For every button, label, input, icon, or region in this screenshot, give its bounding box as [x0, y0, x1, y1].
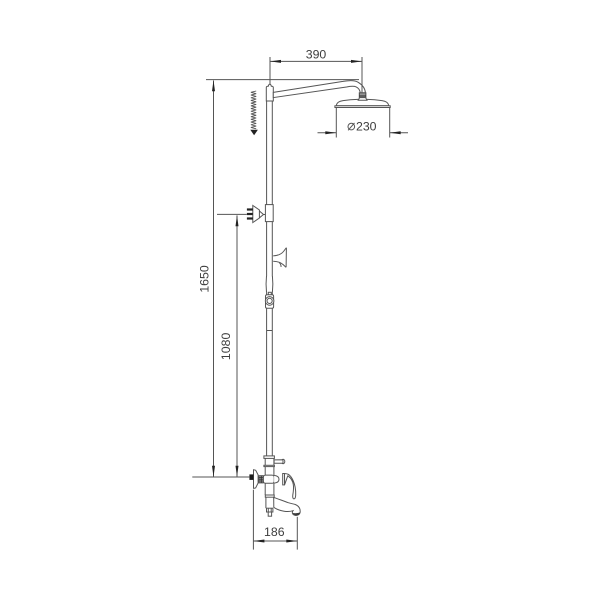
- svg-text:230: 230: [356, 119, 377, 133]
- svg-text:186: 186: [264, 525, 285, 539]
- svg-text:390: 390: [306, 48, 327, 62]
- svg-text:1080: 1080: [219, 333, 233, 361]
- svg-text:1650: 1650: [198, 265, 212, 293]
